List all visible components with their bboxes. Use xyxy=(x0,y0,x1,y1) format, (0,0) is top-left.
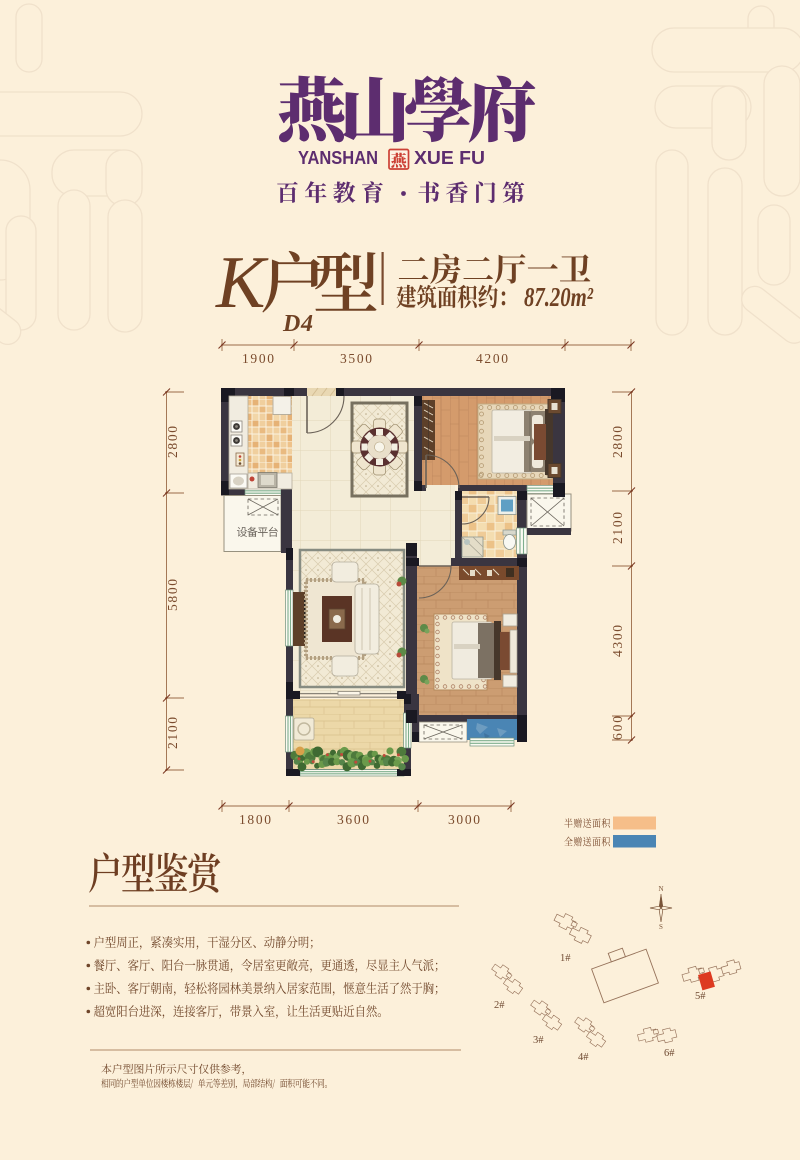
svg-text:2#: 2# xyxy=(494,1000,505,1011)
svg-text:4#: 4# xyxy=(578,1052,589,1063)
svg-text:D4: D4 xyxy=(282,311,313,337)
svg-text:2800: 2800 xyxy=(165,426,180,458)
svg-text:3600: 3600 xyxy=(337,812,369,827)
svg-text:600: 600 xyxy=(610,716,625,740)
svg-text:5800: 5800 xyxy=(165,579,180,611)
svg-text:3000: 3000 xyxy=(448,812,480,827)
svg-text:6#: 6# xyxy=(664,1048,675,1059)
svg-text:2800: 2800 xyxy=(610,426,625,458)
svg-text:YANSHAN: YANSHAN xyxy=(298,148,378,168)
svg-text:2100: 2100 xyxy=(165,717,180,749)
svg-text:4300: 4300 xyxy=(610,625,625,657)
svg-text:1900: 1900 xyxy=(242,351,274,366)
svg-text:3500: 3500 xyxy=(340,351,372,366)
svg-text:2100: 2100 xyxy=(610,512,625,544)
svg-text:1#: 1# xyxy=(560,953,571,964)
svg-text:1800: 1800 xyxy=(239,812,271,827)
svg-text:5#: 5# xyxy=(695,991,706,1002)
svg-text:XUE FU: XUE FU xyxy=(414,148,485,168)
svg-text:4200: 4200 xyxy=(476,351,508,366)
svg-text:S: S xyxy=(659,923,663,931)
svg-text:3#: 3# xyxy=(533,1035,544,1046)
svg-text:N: N xyxy=(658,885,663,893)
svg-text:87.20m²: 87.20m² xyxy=(524,282,594,312)
svg-text:K: K xyxy=(215,242,269,324)
